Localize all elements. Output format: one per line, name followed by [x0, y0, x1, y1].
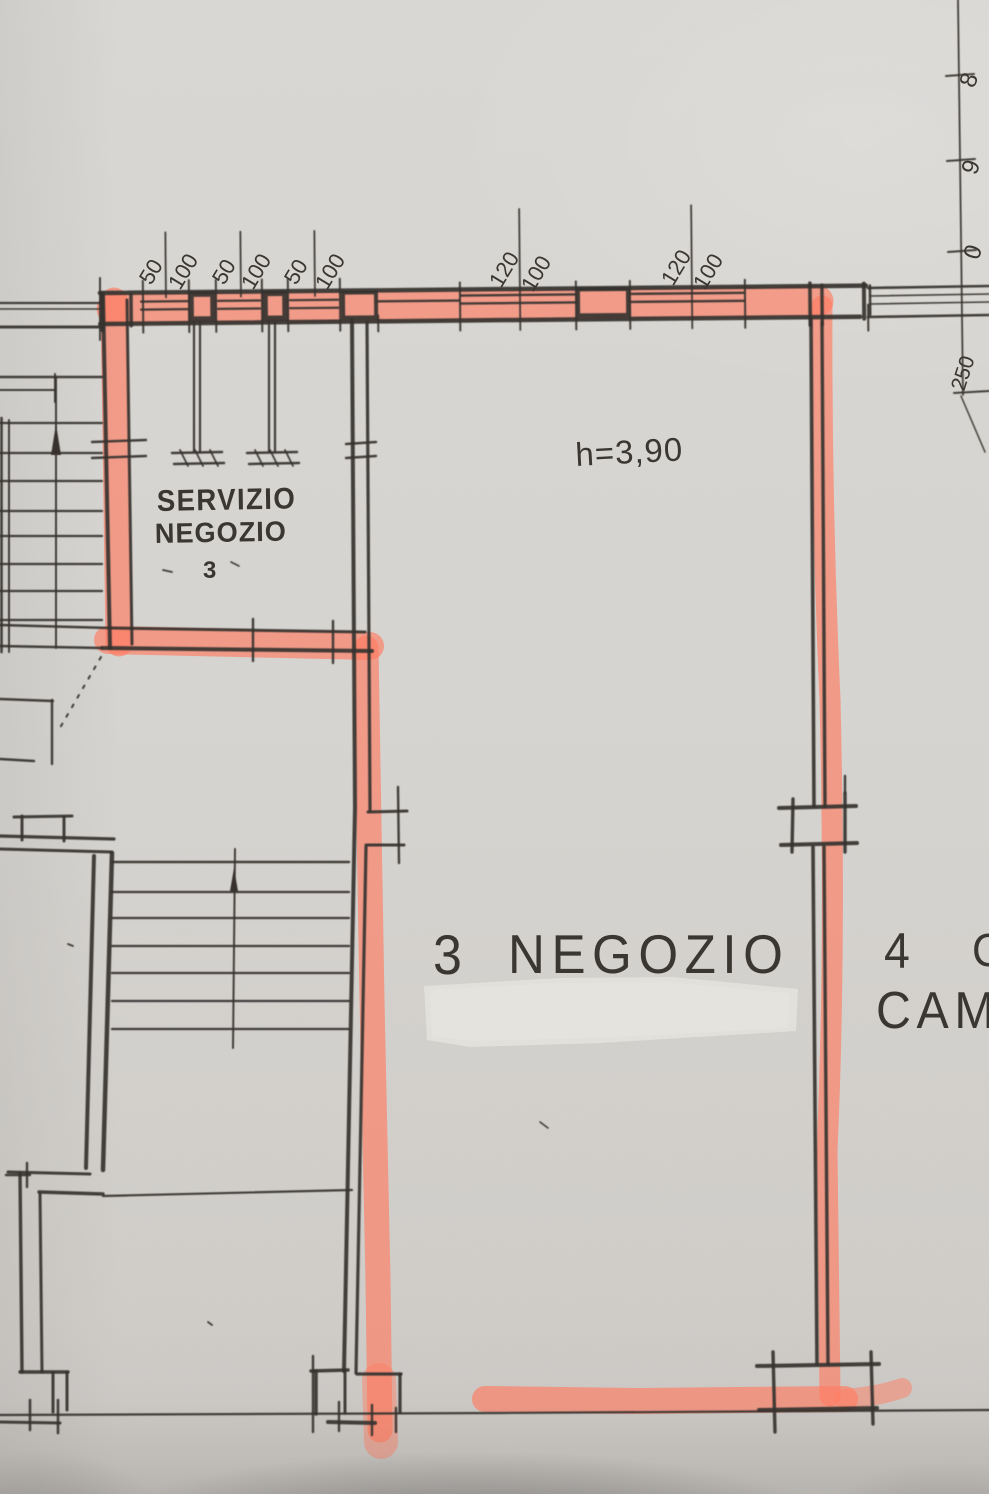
svg-text:3: 3: [433, 924, 462, 986]
svg-text:C: C: [972, 926, 989, 977]
svg-text:h=3,90: h=3,90: [574, 430, 684, 473]
svg-text:SERVIZIO: SERVIZIO: [157, 482, 297, 518]
svg-text:CAM: CAM: [876, 981, 989, 1039]
svg-text:NEGOZIO: NEGOZIO: [508, 924, 789, 985]
svg-text:NEGOZIO: NEGOZIO: [155, 515, 288, 549]
svg-text:4: 4: [884, 923, 910, 979]
svg-text:3: 3: [203, 557, 216, 584]
